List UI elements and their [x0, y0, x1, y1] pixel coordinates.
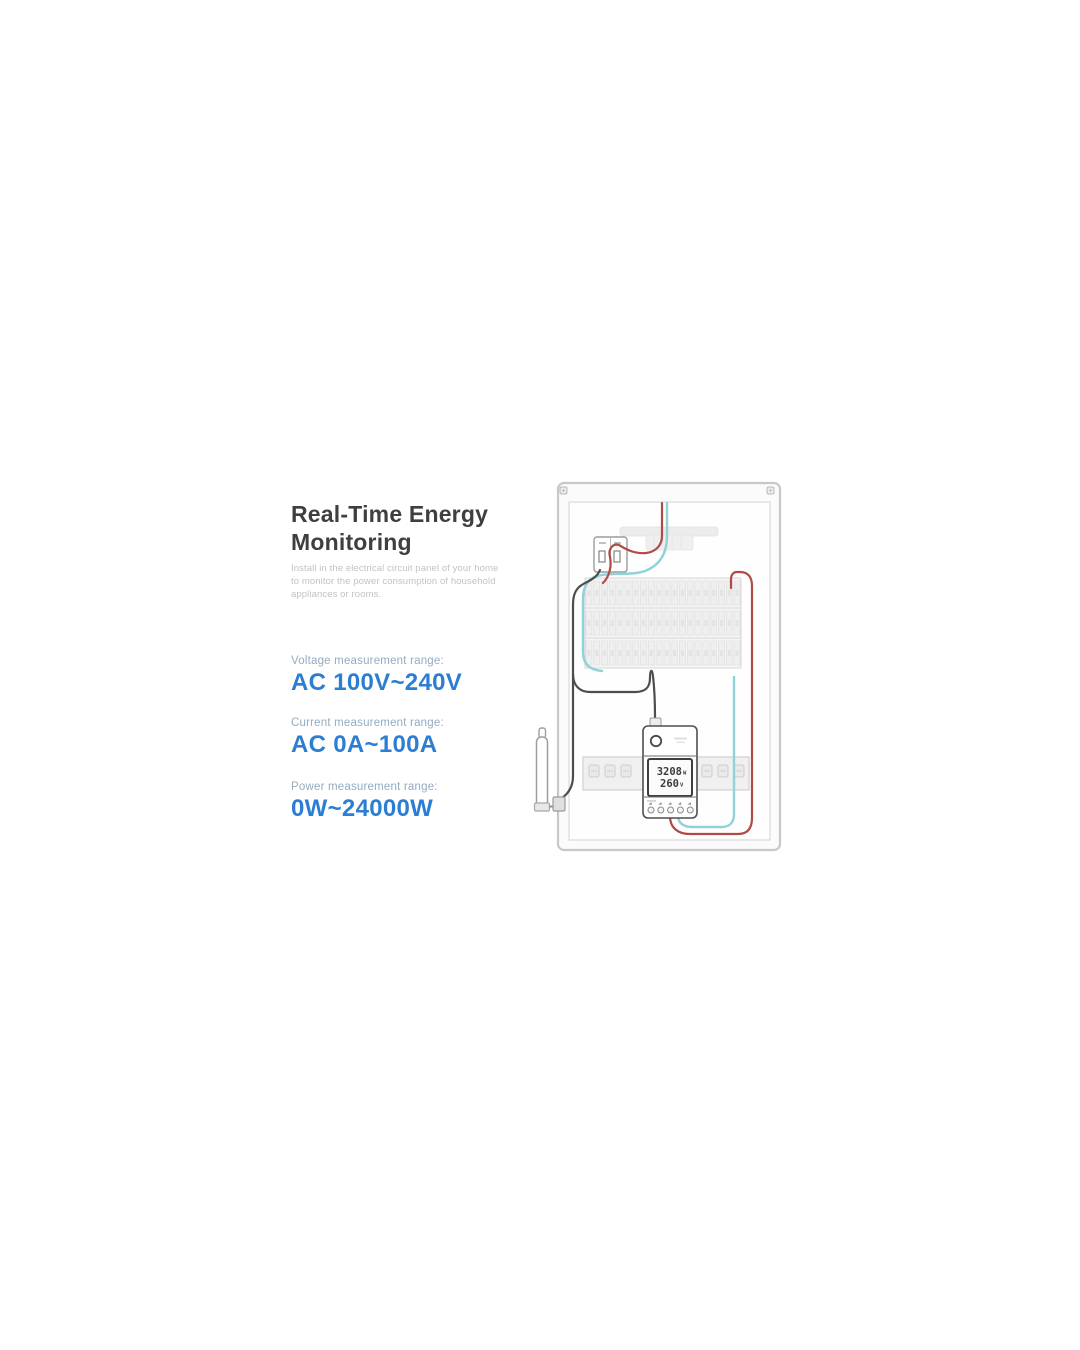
description-line2: to monitor the power consumption of hous…: [291, 576, 541, 589]
spec-current-range: Current measurement range: AC 0A~100A: [291, 716, 541, 758]
spec-voltage-range: Voltage measurement range: AC 100V~240V: [291, 654, 541, 696]
spec-power-value: 0W~24000W: [291, 796, 541, 822]
spec-current-label: Current measurement range:: [291, 716, 541, 730]
energy-meter-device: 3208 W 260 V: [643, 718, 697, 818]
page: Real-Time Energy Monitoring Install in t…: [0, 0, 1080, 1350]
screw-icon-right: [767, 487, 774, 494]
breaker-rows-grid: [585, 578, 741, 668]
spec-power-range: Power measurement range: 0W~24000W: [291, 780, 541, 822]
spec-voltage-label: Voltage measurement range:: [291, 654, 541, 668]
page-title-line1: Real-Time Energy: [291, 500, 541, 528]
meter-button-icon: [651, 736, 661, 746]
page-title: Real-Time Energy Monitoring: [291, 500, 541, 556]
meter-terminal-label: [647, 800, 656, 802]
spec-current-value: AC 0A~100A: [291, 732, 541, 758]
description-line1: Install in the electrical circuit panel …: [291, 563, 541, 576]
meter-lcd: 3208 W 260 V: [648, 759, 692, 796]
cable-gland: [553, 797, 565, 811]
description-line3: appliances or rooms.: [291, 589, 541, 602]
din-rail-terminals-left: [589, 765, 631, 777]
antenna-base: [535, 803, 550, 811]
lcd-voltage-value: 260: [660, 778, 679, 790]
screw-icon-left: [560, 487, 567, 494]
circuit-panel-diagram: 3208 W 260 V: [530, 468, 800, 868]
info-column: Real-Time Energy Monitoring Install in t…: [291, 500, 541, 822]
spec-power-label: Power measurement range:: [291, 780, 541, 794]
lcd-power-value: 3208: [657, 766, 682, 778]
page-title-line2: Monitoring: [291, 528, 541, 556]
antenna-body: [537, 737, 548, 807]
din-rail-terminals-right: [702, 765, 744, 777]
page-description: Install in the electrical circuit panel …: [291, 563, 541, 601]
spec-voltage-value: AC 100V~240V: [291, 670, 541, 696]
